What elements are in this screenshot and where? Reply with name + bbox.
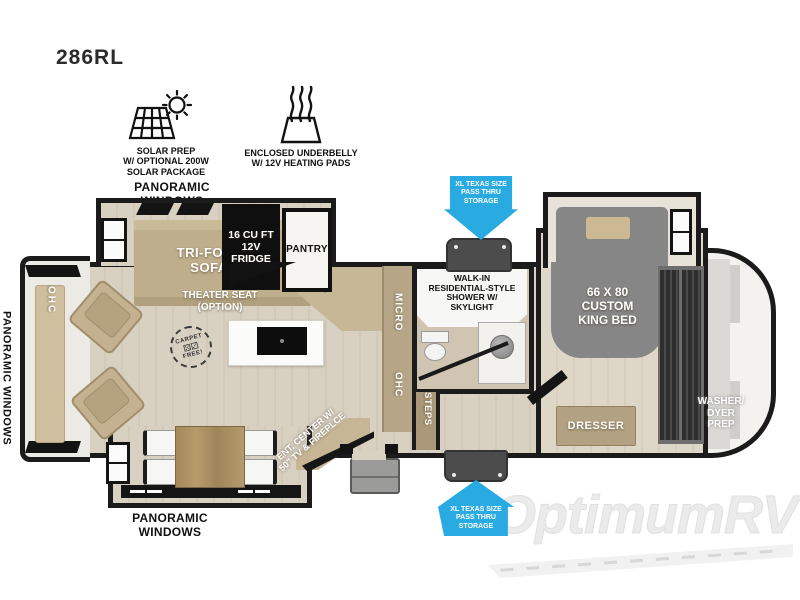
rear-cap: OHC: [20, 256, 90, 462]
road-dashes: [500, 549, 780, 572]
kitchen-cabinet-strip: MICRO OHC: [382, 266, 412, 432]
dinette-table: [175, 426, 245, 488]
king-bed: 66 X 80 CUSTOM KING BED: [551, 262, 664, 358]
slide-side-window: [101, 218, 127, 262]
rear-window-top: [25, 265, 81, 277]
king-bed-label: 66 X 80 CUSTOM KING BED: [551, 286, 664, 327]
cooktop: [257, 327, 307, 355]
dinette-window-2: [235, 487, 273, 496]
entry-door-jamb-right: [385, 444, 398, 454]
theater-seat-label: THEATER SEAT (OPTION): [160, 290, 280, 313]
pass-thru-door-bottom: [444, 450, 508, 482]
entry-steps-platform: [350, 458, 400, 494]
pantry: PANTRY: [282, 208, 332, 292]
micro-label: MICRO: [392, 280, 404, 344]
watermark-logo: OptimumRV: [494, 484, 797, 546]
front-cap-shelf-top: [730, 265, 740, 323]
dresser: DRESSER: [556, 406, 636, 446]
fridge-label: 16 CU FT 12V FRIDGE: [228, 229, 274, 265]
steps-area: STEPS: [412, 392, 440, 450]
underbelly-label: ENCLOSED UNDERBELLY W/ 12V HEATING PADS: [226, 148, 376, 169]
shower-label: WALK-IN RESIDENTIAL-STYLE SHOWER W/ SKYL…: [419, 274, 525, 312]
solar-prep-label: SOLAR PREP W/ OPTIONAL 200W SOLAR PACKAG…: [96, 146, 236, 177]
rear-ohc-label: OHC: [45, 286, 57, 444]
solar-panel-icon: [124, 90, 198, 144]
floorplan-canvas: OptimumRV 286RL SOLAR PREP W/ OPTIONAL 2…: [0, 0, 800, 600]
pass-thru-door-top: [446, 238, 512, 272]
toilet-bowl: [424, 343, 446, 361]
dinette-side-window: [106, 442, 130, 484]
bed-pillow: [586, 217, 630, 239]
pass-thru-arrow-down: XL TEXAS SIZE PASS THRU STORAGE: [444, 176, 518, 240]
cooktop-knob: [280, 339, 284, 343]
toilet-tank: [421, 331, 449, 343]
kitchen-island: [228, 320, 324, 366]
bed-slideout: [543, 192, 701, 268]
pass-thru-top-label: XL TEXAS SIZE PASS THRU STORAGE: [444, 176, 518, 206]
bathroom: WALK-IN RESIDENTIAL-STYLE SHOWER W/ SKYL…: [412, 264, 534, 394]
washer-dryer-prep-label: WASHER/ DYER PREP: [688, 396, 754, 431]
panoramic-windows-bottom-label: PANORAMIC WINDOWS: [100, 512, 240, 540]
entry-door-jamb-left: [340, 444, 353, 454]
rear-ohc-cabinet: OHC: [35, 285, 65, 443]
dresser-label: DRESSER: [568, 420, 625, 433]
panoramic-windows-left-label: PANORAMIC WINDOWS: [0, 292, 13, 464]
model-number: 286RL: [56, 46, 124, 70]
watermark-road: [488, 544, 793, 578]
entry-door-opening: [352, 451, 386, 460]
pantry-label: PANTRY: [286, 244, 328, 256]
heating-pads-icon: [272, 84, 330, 146]
dinette-window-1: [127, 487, 165, 496]
dinette-chair-2: [143, 459, 177, 485]
slide-window-1: [136, 203, 174, 215]
dinette-chair-1: [143, 430, 177, 456]
dinette-chair-3: [243, 430, 277, 456]
slide-window-2: [176, 203, 214, 215]
bedroom-slide-window: [670, 209, 692, 255]
entry-step-line: [352, 476, 398, 478]
steps-label: STEPS: [421, 392, 432, 450]
kitchen-ohc-label: OHC: [392, 358, 404, 412]
closet-door-left: [660, 270, 679, 440]
